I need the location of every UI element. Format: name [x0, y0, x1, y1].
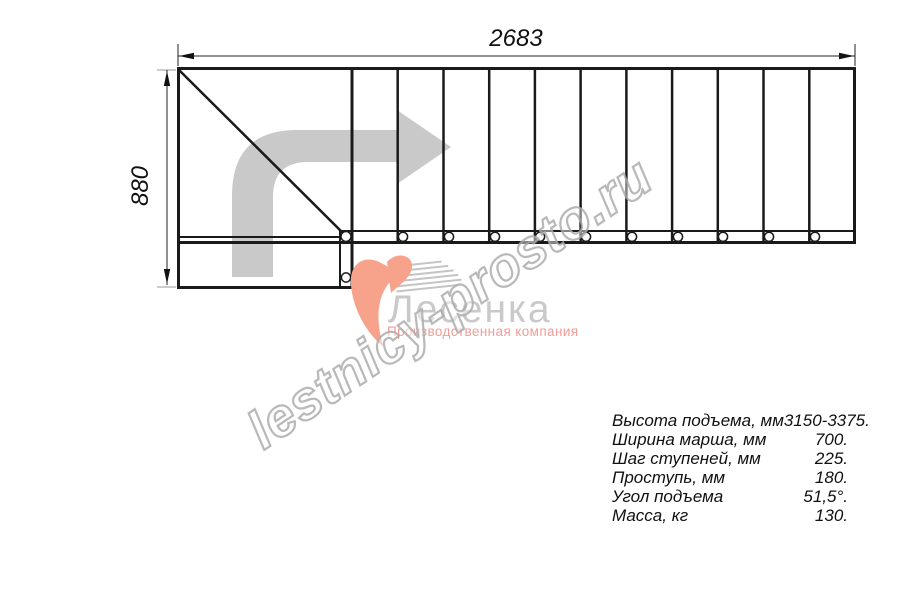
- spec-value: 130.: [815, 507, 848, 526]
- spec-label: Высота подъема, мм: [612, 412, 784, 431]
- spec-row: Проступь, мм 180.: [612, 469, 848, 488]
- spec-row: Ширина марша, мм 700.: [612, 431, 848, 450]
- spec-label: Шаг ступеней, мм: [612, 450, 761, 469]
- spec-label: Проступь, мм: [612, 469, 725, 488]
- spec-table: Высота подъема, мм 3150-3375. Ширина мар…: [612, 412, 848, 525]
- spec-row: Угол подъема 51,5°.: [612, 488, 848, 507]
- spec-value: 51,5°.: [803, 488, 848, 507]
- spec-label: Угол подъема: [612, 488, 723, 507]
- spec-value: 700.: [815, 431, 848, 450]
- dim-width-label: 2683: [488, 25, 543, 52]
- spec-row: Масса, кг 130.: [612, 507, 848, 526]
- spec-value: 225.: [815, 450, 848, 469]
- spec-value: 180.: [815, 469, 848, 488]
- spec-label: Масса, кг: [612, 507, 688, 526]
- dim-height-label: 880: [127, 165, 154, 206]
- spec-row: Высота подъема, мм 3150-3375.: [612, 412, 848, 431]
- spec-label: Ширина марша, мм: [612, 431, 766, 450]
- spec-row: Шаг ступеней, мм 225.: [612, 450, 848, 469]
- tread-lines: [398, 69, 810, 243]
- spec-value: 3150-3375.: [784, 412, 870, 431]
- logo-tagline: Производственная компания: [387, 324, 578, 339]
